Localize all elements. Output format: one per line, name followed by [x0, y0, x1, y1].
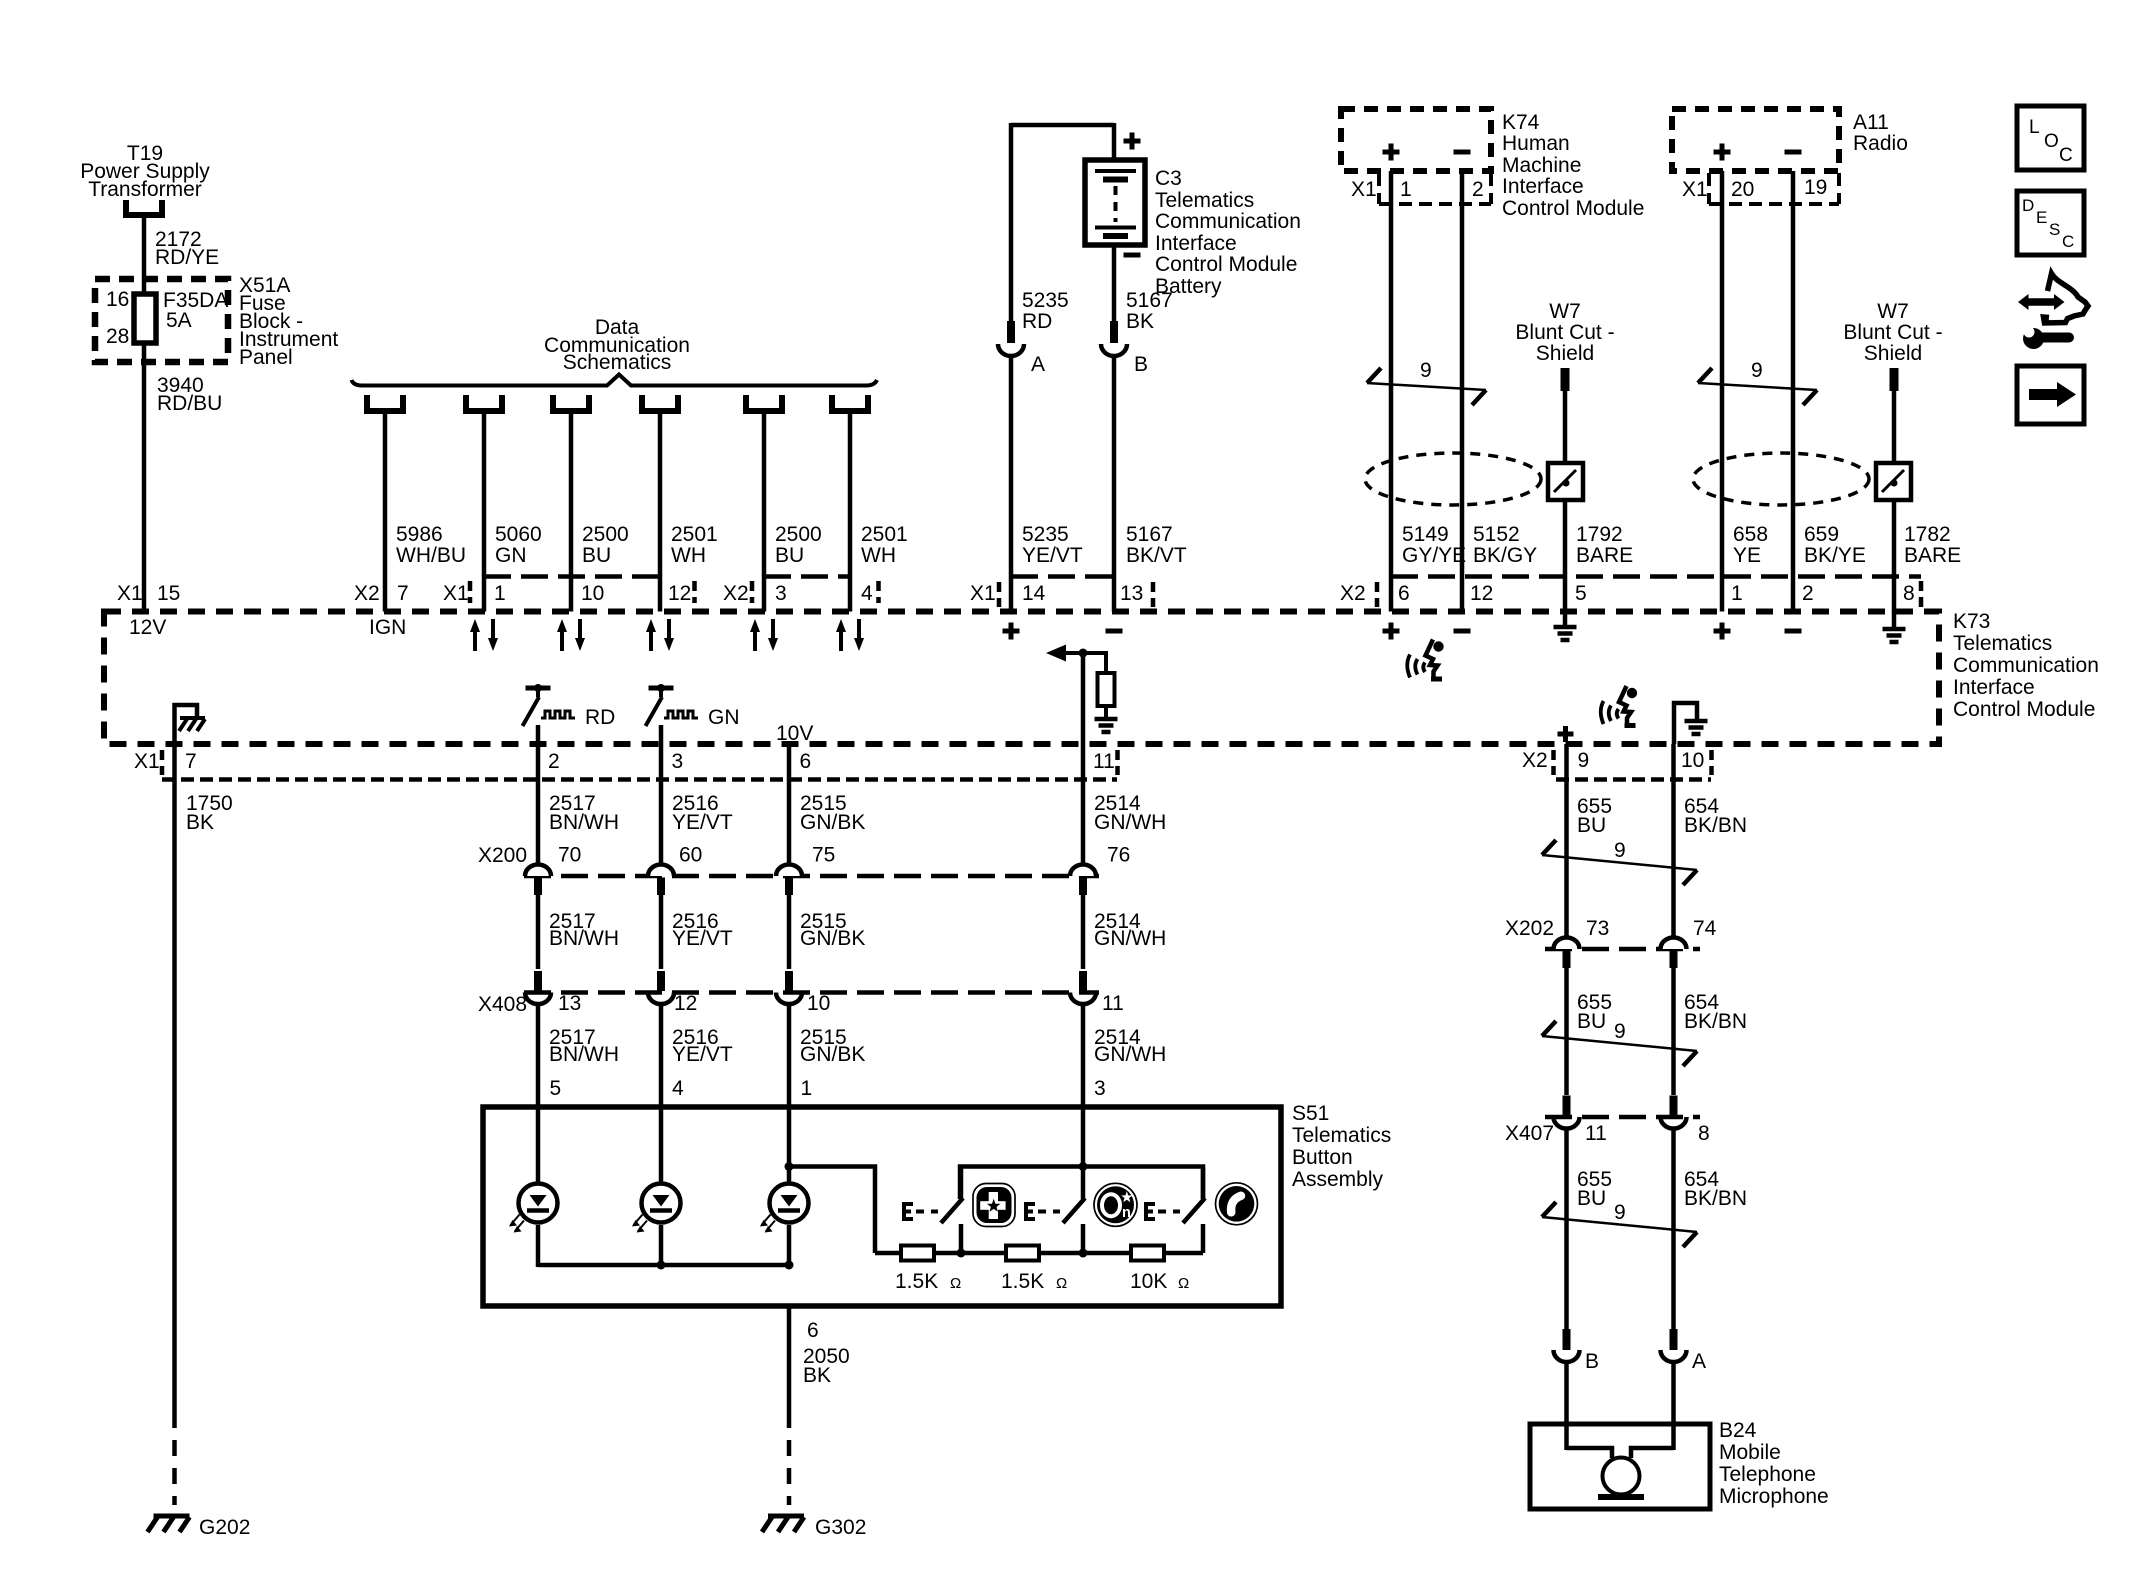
svg-text:1.5K: 1.5K [895, 1270, 938, 1293]
svg-text:Control Module: Control Module [1502, 197, 1644, 220]
svg-text:60: 60 [679, 844, 702, 867]
svg-text:19: 19 [1804, 176, 1827, 199]
svg-text:11: 11 [1585, 1122, 1607, 1145]
svg-text:GN/BK: GN/BK [800, 927, 865, 950]
svg-text:2501: 2501 [671, 523, 718, 546]
svg-text:2501: 2501 [861, 523, 908, 546]
svg-text:9: 9 [1751, 359, 1763, 382]
svg-text:BK: BK [803, 1364, 831, 1387]
svg-text:GN/WH: GN/WH [1094, 1043, 1166, 1066]
svg-text:11: 11 [1102, 992, 1124, 1015]
svg-text:1: 1 [801, 1077, 813, 1100]
svg-text:B: B [1585, 1350, 1599, 1373]
svg-text:C: C [2062, 232, 2074, 251]
svg-text:5: 5 [550, 1077, 562, 1100]
svg-text:Shield: Shield [1864, 342, 1922, 365]
svg-text:10V: 10V [776, 722, 813, 745]
svg-text:GN: GN [708, 706, 740, 729]
svg-text:WH: WH [671, 544, 706, 567]
svg-text:BARE: BARE [1576, 544, 1633, 567]
svg-text:Microphone: Microphone [1719, 1485, 1829, 1508]
svg-text:Ω: Ω [1056, 1275, 1067, 1292]
svg-text:Machine: Machine [1502, 154, 1581, 177]
svg-text:6: 6 [1398, 582, 1410, 605]
svg-text:X1: X1 [1351, 178, 1377, 201]
svg-text:2500: 2500 [582, 523, 629, 546]
svg-text:5149: 5149 [1402, 523, 1449, 546]
svg-text:659: 659 [1804, 523, 1839, 546]
svg-text:14: 14 [1022, 582, 1046, 605]
svg-text:10K: 10K [1130, 1270, 1167, 1293]
svg-text:BK: BK [1126, 310, 1154, 333]
svg-text:WH: WH [861, 544, 896, 567]
svg-text:8: 8 [1903, 582, 1915, 605]
svg-text:3: 3 [1094, 1077, 1106, 1100]
svg-text:13: 13 [1120, 582, 1143, 605]
svg-text:15: 15 [157, 582, 180, 605]
svg-text:GN: GN [495, 544, 527, 567]
svg-text:9: 9 [1614, 1020, 1626, 1043]
svg-text:B: B [1134, 353, 1148, 376]
svg-text:W7: W7 [1549, 300, 1581, 323]
svg-text:BU: BU [775, 544, 804, 567]
svg-text:5235: 5235 [1022, 523, 1069, 546]
svg-text:Assembly: Assembly [1292, 1168, 1384, 1191]
svg-text:X1: X1 [970, 582, 996, 605]
svg-text:WH/BU: WH/BU [396, 544, 466, 567]
svg-text:6: 6 [807, 1319, 819, 1342]
svg-text:2: 2 [1472, 178, 1484, 201]
svg-text:76: 76 [1107, 844, 1130, 867]
svg-text:X1: X1 [1682, 178, 1708, 201]
svg-text:5167: 5167 [1126, 289, 1173, 312]
svg-text:Control Module: Control Module [1155, 253, 1297, 276]
svg-text:10: 10 [807, 992, 830, 1015]
svg-text:YE/VT: YE/VT [672, 811, 733, 834]
svg-text:12V: 12V [129, 616, 166, 639]
svg-text:W7: W7 [1877, 300, 1909, 323]
svg-text:X1: X1 [117, 582, 143, 605]
svg-text:12: 12 [668, 582, 691, 605]
svg-text:4: 4 [672, 1077, 684, 1100]
svg-text:BK: BK [186, 811, 214, 834]
svg-text:YE/VT: YE/VT [672, 1043, 733, 1066]
svg-text:YE: YE [1733, 544, 1761, 567]
svg-text:5060: 5060 [495, 523, 542, 546]
svg-text:75: 75 [812, 844, 835, 867]
svg-text:X2: X2 [1522, 749, 1548, 772]
svg-text:BU: BU [1577, 1010, 1606, 1033]
svg-text:L: L [2029, 117, 2040, 138]
svg-text:A: A [1692, 1350, 1706, 1373]
svg-text:Communication: Communication [1953, 654, 2099, 677]
svg-text:YE/VT: YE/VT [1022, 544, 1083, 567]
svg-text:74: 74 [1693, 917, 1717, 940]
svg-text:C3: C3 [1155, 167, 1182, 190]
svg-text:RD: RD [585, 706, 615, 729]
svg-text:3: 3 [775, 582, 787, 605]
svg-text:BARE: BARE [1904, 544, 1961, 567]
svg-text:9: 9 [1578, 749, 1590, 772]
svg-text:Ω: Ω [1178, 1275, 1189, 1292]
svg-text:5235: 5235 [1022, 289, 1069, 312]
svg-text:X202: X202 [1505, 917, 1554, 940]
svg-text:Panel: Panel [239, 346, 293, 369]
svg-text:70: 70 [558, 844, 581, 867]
svg-text:D: D [2022, 196, 2034, 215]
svg-text:G302: G302 [815, 1516, 866, 1539]
svg-text:1792: 1792 [1576, 523, 1623, 546]
svg-text:X2: X2 [354, 582, 380, 605]
svg-text:Human: Human [1502, 132, 1570, 155]
svg-text:9: 9 [1614, 1201, 1626, 1224]
svg-text:BN/WH: BN/WH [549, 811, 619, 834]
svg-text:Ω: Ω [950, 1275, 961, 1292]
svg-text:4: 4 [861, 582, 873, 605]
svg-text:X2: X2 [1340, 582, 1366, 605]
svg-text:X200: X200 [478, 844, 527, 867]
svg-text:A11: A11 [1853, 111, 1889, 134]
svg-text:2500: 2500 [775, 523, 822, 546]
svg-text:BK/BN: BK/BN [1684, 1187, 1747, 1210]
svg-text:K74: K74 [1502, 111, 1540, 134]
svg-text:Transformer: Transformer [88, 178, 202, 201]
svg-text:1: 1 [1731, 582, 1743, 605]
svg-text:10: 10 [1681, 749, 1704, 772]
svg-text:GN/BK: GN/BK [800, 1043, 865, 1066]
svg-text:9: 9 [1614, 839, 1626, 862]
svg-text:BN/WH: BN/WH [549, 927, 619, 950]
svg-text:12: 12 [674, 992, 697, 1015]
svg-text:RD/BU: RD/BU [157, 392, 222, 415]
svg-text:BK/BN: BK/BN [1684, 814, 1747, 837]
svg-text:20: 20 [1731, 178, 1754, 201]
svg-text:BK/YE: BK/YE [1804, 544, 1866, 567]
svg-text:K73: K73 [1953, 610, 1990, 633]
svg-text:BU: BU [582, 544, 611, 567]
svg-text:3: 3 [672, 750, 684, 773]
svg-text:5152: 5152 [1473, 523, 1520, 546]
svg-text:X1: X1 [134, 750, 160, 773]
svg-text:B24: B24 [1719, 1419, 1757, 1442]
svg-text:Mobile: Mobile [1719, 1441, 1781, 1464]
svg-text:5A: 5A [166, 309, 192, 332]
svg-text:BK/GY: BK/GY [1473, 544, 1537, 567]
svg-text:X2: X2 [723, 582, 749, 605]
svg-text:Telephone: Telephone [1719, 1463, 1816, 1486]
svg-text:73: 73 [1586, 917, 1609, 940]
svg-text:Communication: Communication [1155, 210, 1301, 233]
svg-text:BU: BU [1577, 1187, 1606, 1210]
svg-text:S: S [2049, 220, 2060, 239]
svg-text:5167: 5167 [1126, 523, 1173, 546]
svg-text:Interface: Interface [1502, 175, 1584, 198]
svg-text:Blunt Cut -: Blunt Cut - [1843, 321, 1942, 344]
svg-text:11: 11 [1093, 750, 1115, 773]
svg-text:16: 16 [106, 288, 129, 311]
svg-text:Control Module: Control Module [1953, 698, 2095, 721]
svg-text:9: 9 [1420, 359, 1432, 382]
svg-text:BK/VT: BK/VT [1126, 544, 1187, 567]
svg-text:YE/VT: YE/VT [672, 927, 733, 950]
svg-text:Telematics: Telematics [1292, 1124, 1391, 1147]
svg-text:1782: 1782 [1904, 523, 1951, 546]
svg-text:7: 7 [397, 582, 409, 605]
svg-text:2: 2 [1802, 582, 1814, 605]
svg-text:RD/YE: RD/YE [155, 246, 219, 269]
svg-text:BK/BN: BK/BN [1684, 1010, 1747, 1033]
svg-text:n: n [1122, 1205, 1131, 1221]
svg-text:GN/BK: GN/BK [800, 811, 865, 834]
svg-text:GY/YE: GY/YE [1402, 544, 1466, 567]
svg-text:Radio: Radio [1853, 132, 1908, 155]
svg-text:X408: X408 [478, 993, 527, 1016]
svg-text:GN/WH: GN/WH [1094, 927, 1166, 950]
svg-text:Blunt Cut -: Blunt Cut - [1515, 321, 1614, 344]
svg-text:12: 12 [1470, 582, 1493, 605]
svg-text:658: 658 [1733, 523, 1768, 546]
svg-text:5986: 5986 [396, 523, 443, 546]
svg-text:28: 28 [106, 325, 129, 348]
svg-text:Schematics: Schematics [563, 351, 672, 374]
svg-text:Shield: Shield [1536, 342, 1594, 365]
svg-text:O: O [2044, 131, 2059, 152]
svg-text:13: 13 [558, 992, 581, 1015]
svg-text:1.5K: 1.5K [1001, 1270, 1044, 1293]
svg-text:8: 8 [1698, 1122, 1710, 1145]
svg-text:1: 1 [494, 582, 506, 605]
svg-text:7: 7 [185, 750, 197, 773]
svg-text:Interface: Interface [1155, 232, 1237, 255]
svg-text:10: 10 [581, 582, 604, 605]
svg-text:Interface: Interface [1953, 676, 2035, 699]
svg-text:RD: RD [1022, 310, 1052, 333]
svg-text:6: 6 [800, 750, 812, 773]
svg-text:Telematics: Telematics [1953, 632, 2052, 655]
svg-text:Button: Button [1292, 1146, 1353, 1169]
svg-text:X1: X1 [443, 582, 469, 605]
svg-text:C: C [2059, 145, 2073, 166]
svg-text:X407: X407 [1505, 1122, 1554, 1145]
svg-text:5: 5 [1575, 582, 1587, 605]
svg-text:E: E [2036, 208, 2047, 227]
svg-text:S51: S51 [1292, 1102, 1329, 1125]
svg-text:2: 2 [548, 750, 560, 773]
svg-text:1: 1 [1400, 178, 1412, 201]
svg-text:BU: BU [1577, 814, 1606, 837]
svg-text:GN/WH: GN/WH [1094, 811, 1166, 834]
svg-text:BN/WH: BN/WH [549, 1043, 619, 1066]
svg-text:IGN: IGN [369, 616, 406, 639]
svg-text:Telematics: Telematics [1155, 189, 1254, 212]
svg-text:G202: G202 [199, 1516, 250, 1539]
svg-text:A: A [1031, 353, 1045, 376]
